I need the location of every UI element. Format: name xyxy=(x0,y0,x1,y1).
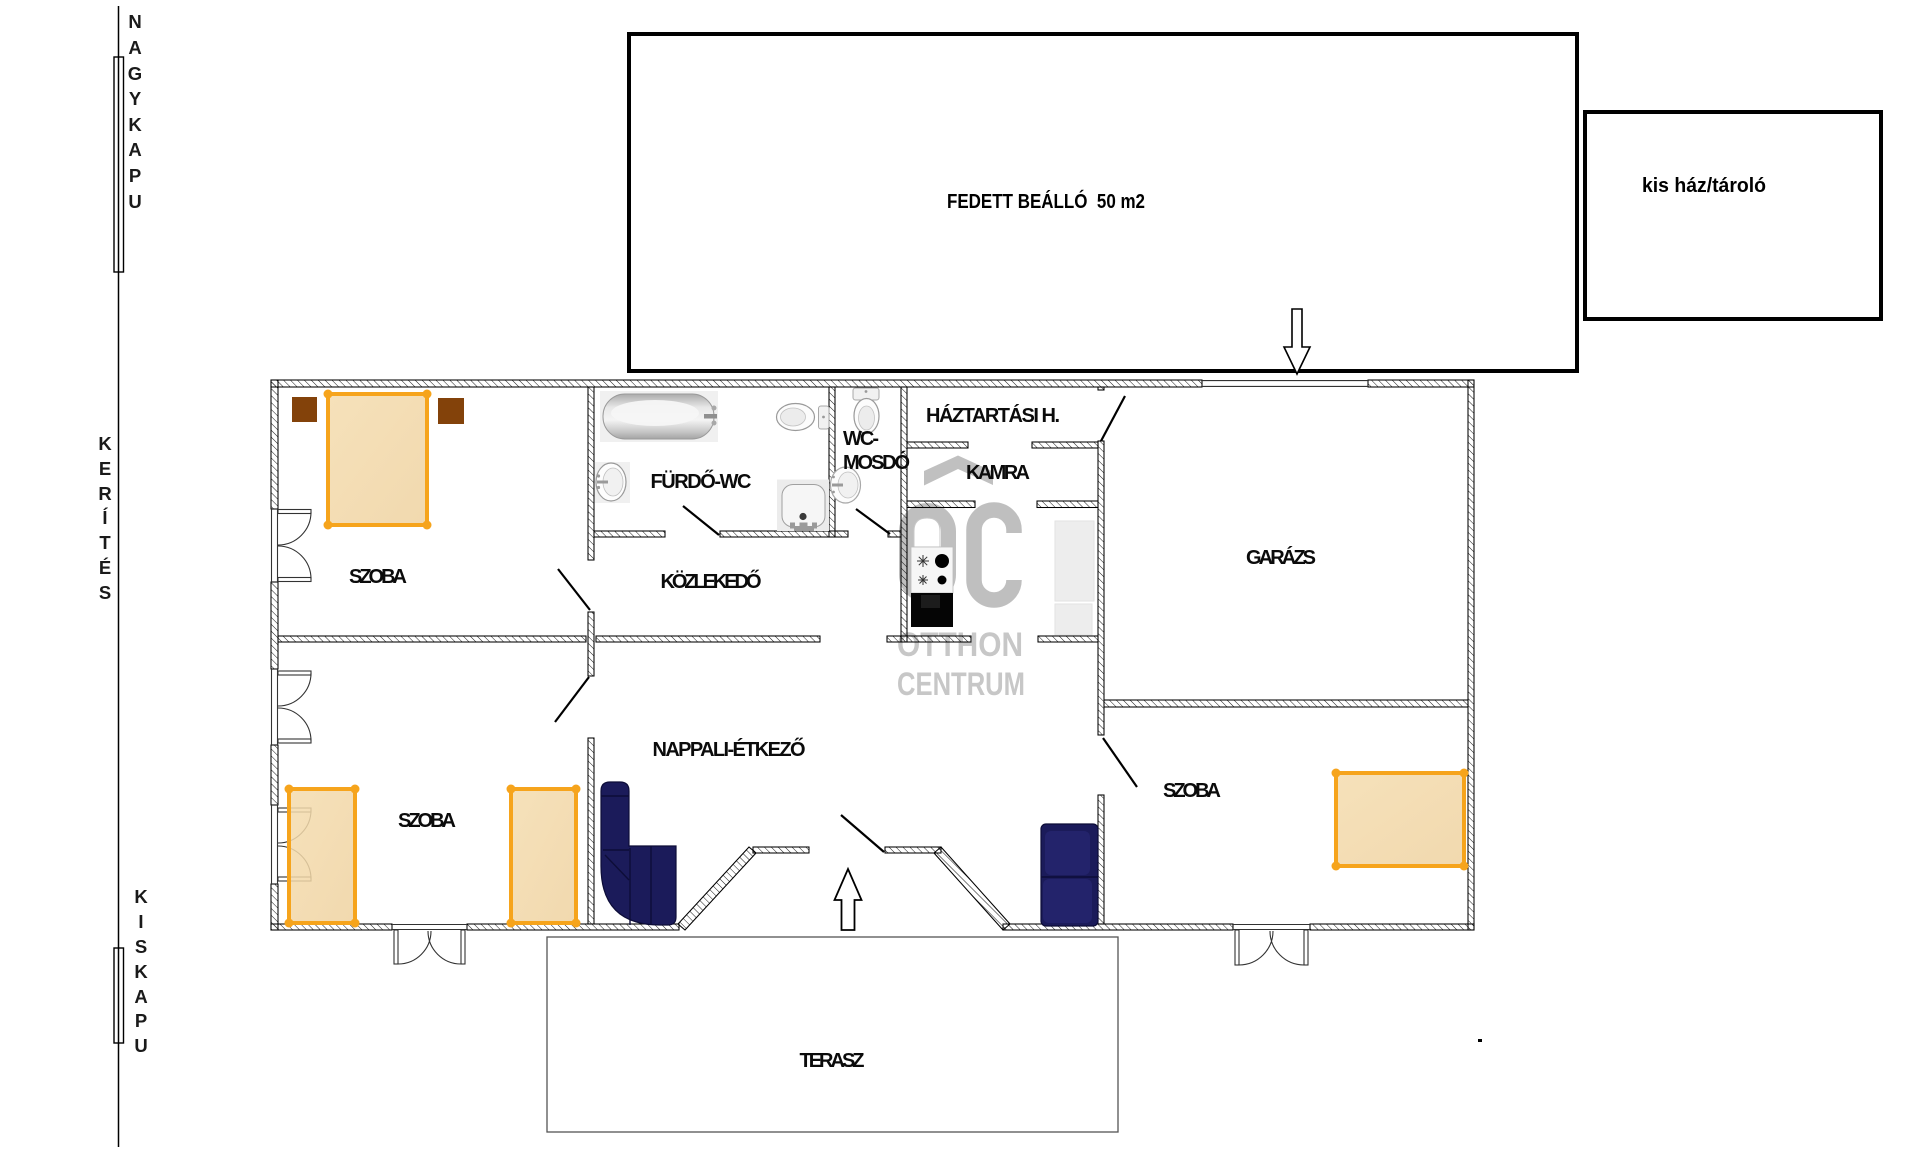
svg-text:Í: Í xyxy=(102,507,108,528)
svg-text:S: S xyxy=(135,936,147,957)
svg-text:TERASZ: TERASZ xyxy=(800,1050,865,1072)
svg-text:CENTRUM: CENTRUM xyxy=(897,666,1025,702)
svg-text:P: P xyxy=(129,165,141,186)
svg-text:SZOBA: SZOBA xyxy=(398,810,456,832)
svg-text:K: K xyxy=(134,886,148,907)
svg-text:OTTHON: OTTHON xyxy=(897,626,1023,664)
svg-text:FEDETT BEÁLLÓ 50 m2: FEDETT BEÁLLÓ 50 m2 xyxy=(947,189,1145,213)
svg-text:KAMRA: KAMRA xyxy=(966,462,1030,484)
svg-text:E: E xyxy=(99,458,111,479)
svg-text:KÖZLEKEDŐ: KÖZLEKEDŐ xyxy=(661,570,762,593)
svg-text:U: U xyxy=(134,1035,147,1056)
svg-text:kis ház/tároló: kis ház/tároló xyxy=(1642,175,1766,197)
svg-text:SZOBA: SZOBA xyxy=(1163,780,1221,802)
svg-text:T: T xyxy=(99,532,111,553)
svg-text:GARÁZS: GARÁZS xyxy=(1246,546,1316,569)
svg-text:Y: Y xyxy=(129,88,142,109)
svg-text:A: A xyxy=(134,986,147,1007)
svg-text:P: P xyxy=(135,1010,147,1031)
svg-text:FÜRDŐ-WC: FÜRDŐ-WC xyxy=(651,470,752,493)
svg-text:A: A xyxy=(128,139,141,160)
svg-text:A: A xyxy=(128,37,141,58)
svg-text:K: K xyxy=(98,433,112,454)
svg-text:I: I xyxy=(138,911,143,932)
svg-text:S: S xyxy=(99,582,111,603)
svg-text:SZOBA: SZOBA xyxy=(349,566,407,588)
svg-text:U: U xyxy=(128,191,141,212)
svg-text:N: N xyxy=(128,11,141,32)
svg-text:É: É xyxy=(99,557,111,578)
svg-text:NAPPALI-ÉTKEZŐ: NAPPALI-ÉTKEZŐ xyxy=(653,738,806,761)
svg-text:WC-: WC- xyxy=(843,428,879,450)
svg-text:G: G xyxy=(128,63,142,84)
svg-text:K: K xyxy=(128,114,142,135)
svg-text:HÁZTARTÁSI H.: HÁZTARTÁSI H. xyxy=(926,404,1060,427)
svg-text:MOSDÓ: MOSDÓ xyxy=(843,450,910,474)
svg-text:K: K xyxy=(134,961,148,982)
svg-text:R: R xyxy=(98,483,111,504)
